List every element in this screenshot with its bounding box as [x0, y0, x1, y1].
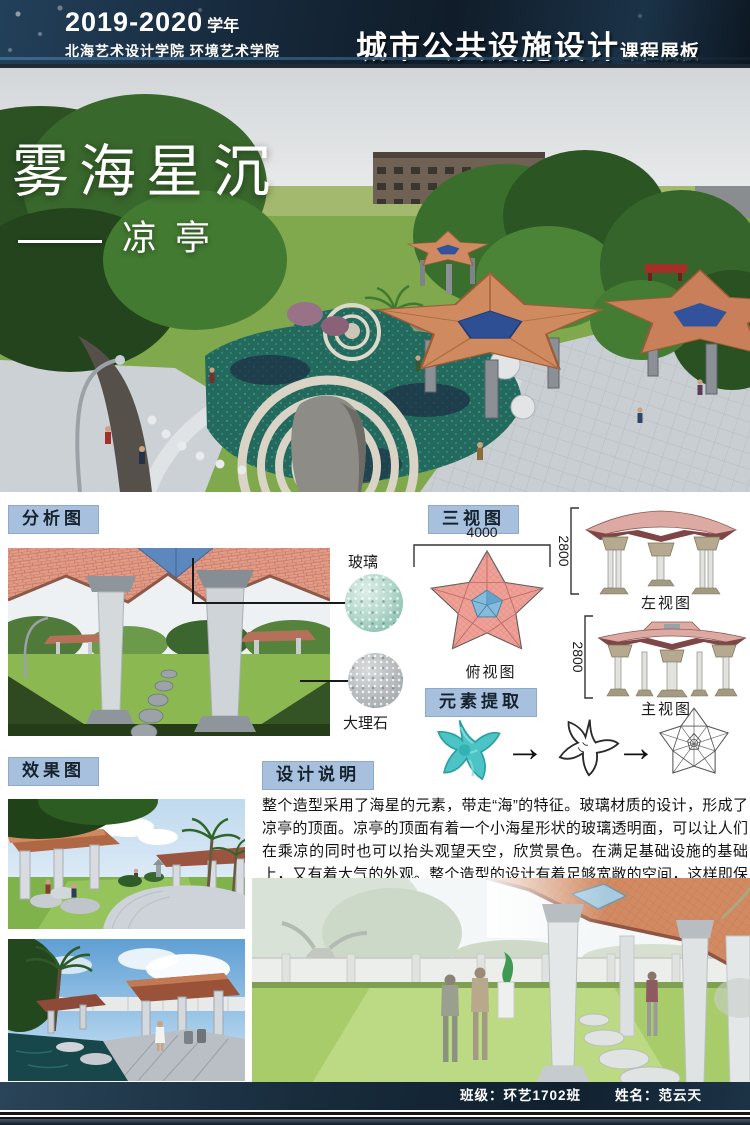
course-suffix: 课程展板 [620, 42, 700, 63]
subtitle-text: 凉亭 [122, 210, 228, 261]
starfish-sketch [546, 708, 620, 786]
footer-bar: 班级：环艺1702班姓名：范云天 [0, 1082, 750, 1110]
header-left: 2019-2020学年 北海艺术设计学院 环境艺术学院 [65, 7, 280, 61]
front-view-drawing [596, 610, 748, 698]
school-text: 北海艺术设计学院 环境艺术学院 [65, 41, 280, 61]
top-view-label: 俯视图 [455, 661, 527, 682]
top-view-drawing [420, 550, 554, 660]
analysis-label-badge: 分析图 [8, 505, 99, 534]
poster-board: 2019-2020学年 北海艺术设计学院 环境艺术学院 城市公共设施设计课程展板 [0, 0, 750, 1125]
starfish-geometry [654, 706, 734, 782]
hero-image: 雾海星沉 凉亭 [0, 68, 750, 492]
callout-line-marble [300, 680, 352, 682]
svg-text:4000: 4000 [466, 524, 497, 540]
description-label-badge: 设计说明 [262, 761, 374, 790]
marble-swatch [348, 653, 403, 708]
bottom-stripes [0, 1110, 750, 1125]
render-image-2 [8, 939, 245, 1081]
callout-line-glass [192, 602, 348, 604]
header-right: 城市公共设施设计课程展板 [356, 22, 700, 67]
year-text: 2019-2020 [65, 7, 203, 37]
class-text: 班级：环艺1702班 [460, 1088, 581, 1103]
name-text: 姓名：范云天 [615, 1088, 702, 1103]
dimension-2800-left: 2800 [550, 505, 580, 597]
header-bar: 2019-2020学年 北海艺术设计学院 环境艺术学院 城市公共设施设计课程展板 [0, 0, 750, 68]
starfish-photo [422, 708, 506, 796]
hero-subtitle: 凉亭 [16, 210, 276, 270]
hero-title: 雾海星沉 [12, 126, 280, 208]
renderings-label-badge: 效果图 [8, 757, 99, 786]
callout-line-glass-vertical [192, 558, 194, 604]
arrow-icon: → [505, 728, 545, 768]
svg-text:2800: 2800 [570, 641, 586, 672]
dimension-2800-front: 2800 [564, 613, 594, 701]
svg-text:2800: 2800 [556, 535, 572, 566]
analysis-scene [8, 548, 330, 736]
year-suffix-text: 学年 [207, 18, 239, 35]
left-view-drawing [582, 503, 740, 595]
subtitle-dash [18, 240, 102, 243]
material-label-glass: 玻璃 [348, 551, 378, 572]
course-title: 城市公共设施设计 [356, 30, 620, 65]
glass-swatch [345, 574, 403, 632]
analysis-photo [8, 548, 330, 736]
render-image-1 [8, 799, 245, 929]
material-label-marble: 大理石 [343, 712, 388, 733]
render-image-large [252, 878, 750, 1083]
arrow-icon: → [616, 728, 656, 768]
